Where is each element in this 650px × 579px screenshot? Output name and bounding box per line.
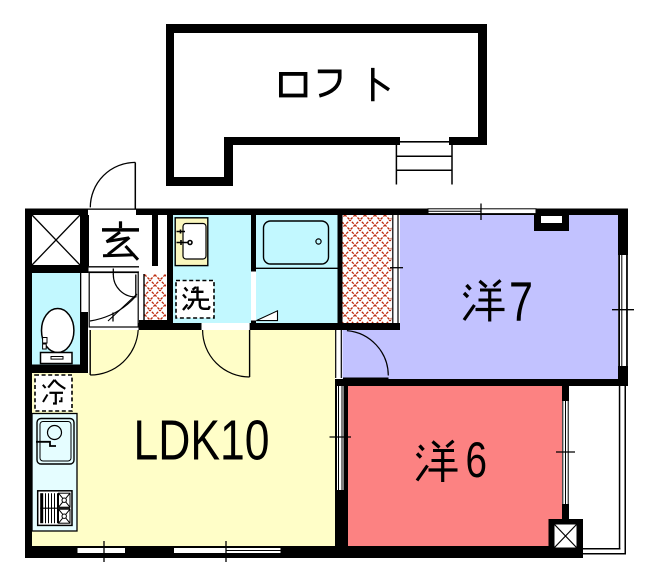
svg-text:7: 7 bbox=[509, 270, 533, 333]
svg-text:6: 6 bbox=[466, 432, 488, 488]
svg-text:LDK10: LDK10 bbox=[134, 409, 270, 473]
